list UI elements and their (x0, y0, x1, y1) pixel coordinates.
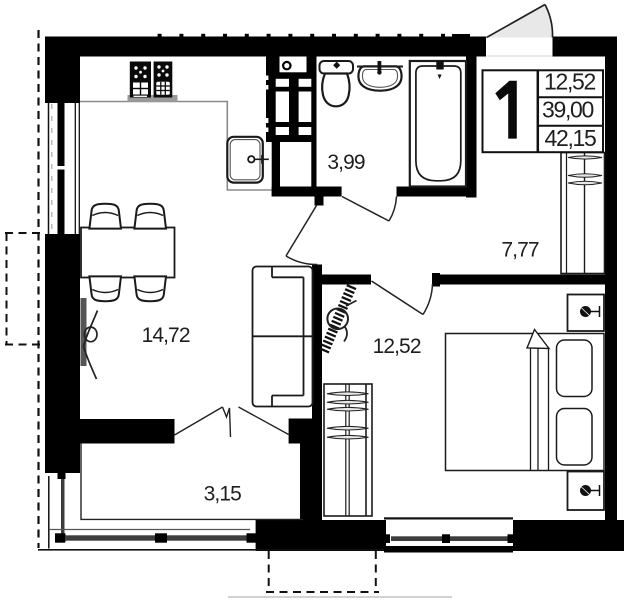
svg-text:7,77: 7,77 (501, 239, 538, 262)
svg-text:14,72: 14,72 (142, 324, 190, 347)
svg-text:12,52: 12,52 (544, 69, 596, 95)
svg-text:39,00: 39,00 (542, 96, 594, 122)
svg-text:12,52: 12,52 (373, 335, 421, 358)
svg-text:42,15: 42,15 (544, 125, 596, 151)
svg-text:3,15: 3,15 (204, 483, 241, 506)
svg-text:3,99: 3,99 (327, 151, 364, 174)
